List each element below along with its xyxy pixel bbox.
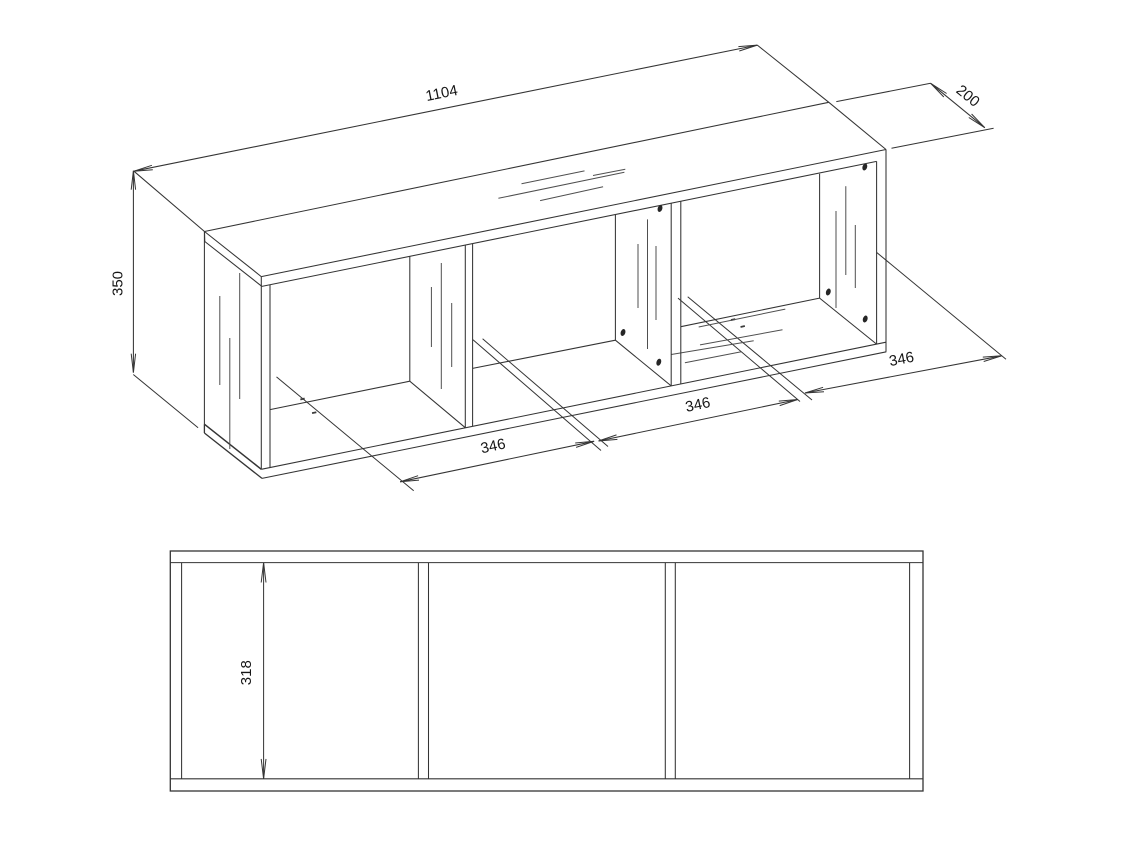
svg-text:318: 318 [238, 660, 255, 685]
svg-text:350: 350 [110, 271, 127, 296]
